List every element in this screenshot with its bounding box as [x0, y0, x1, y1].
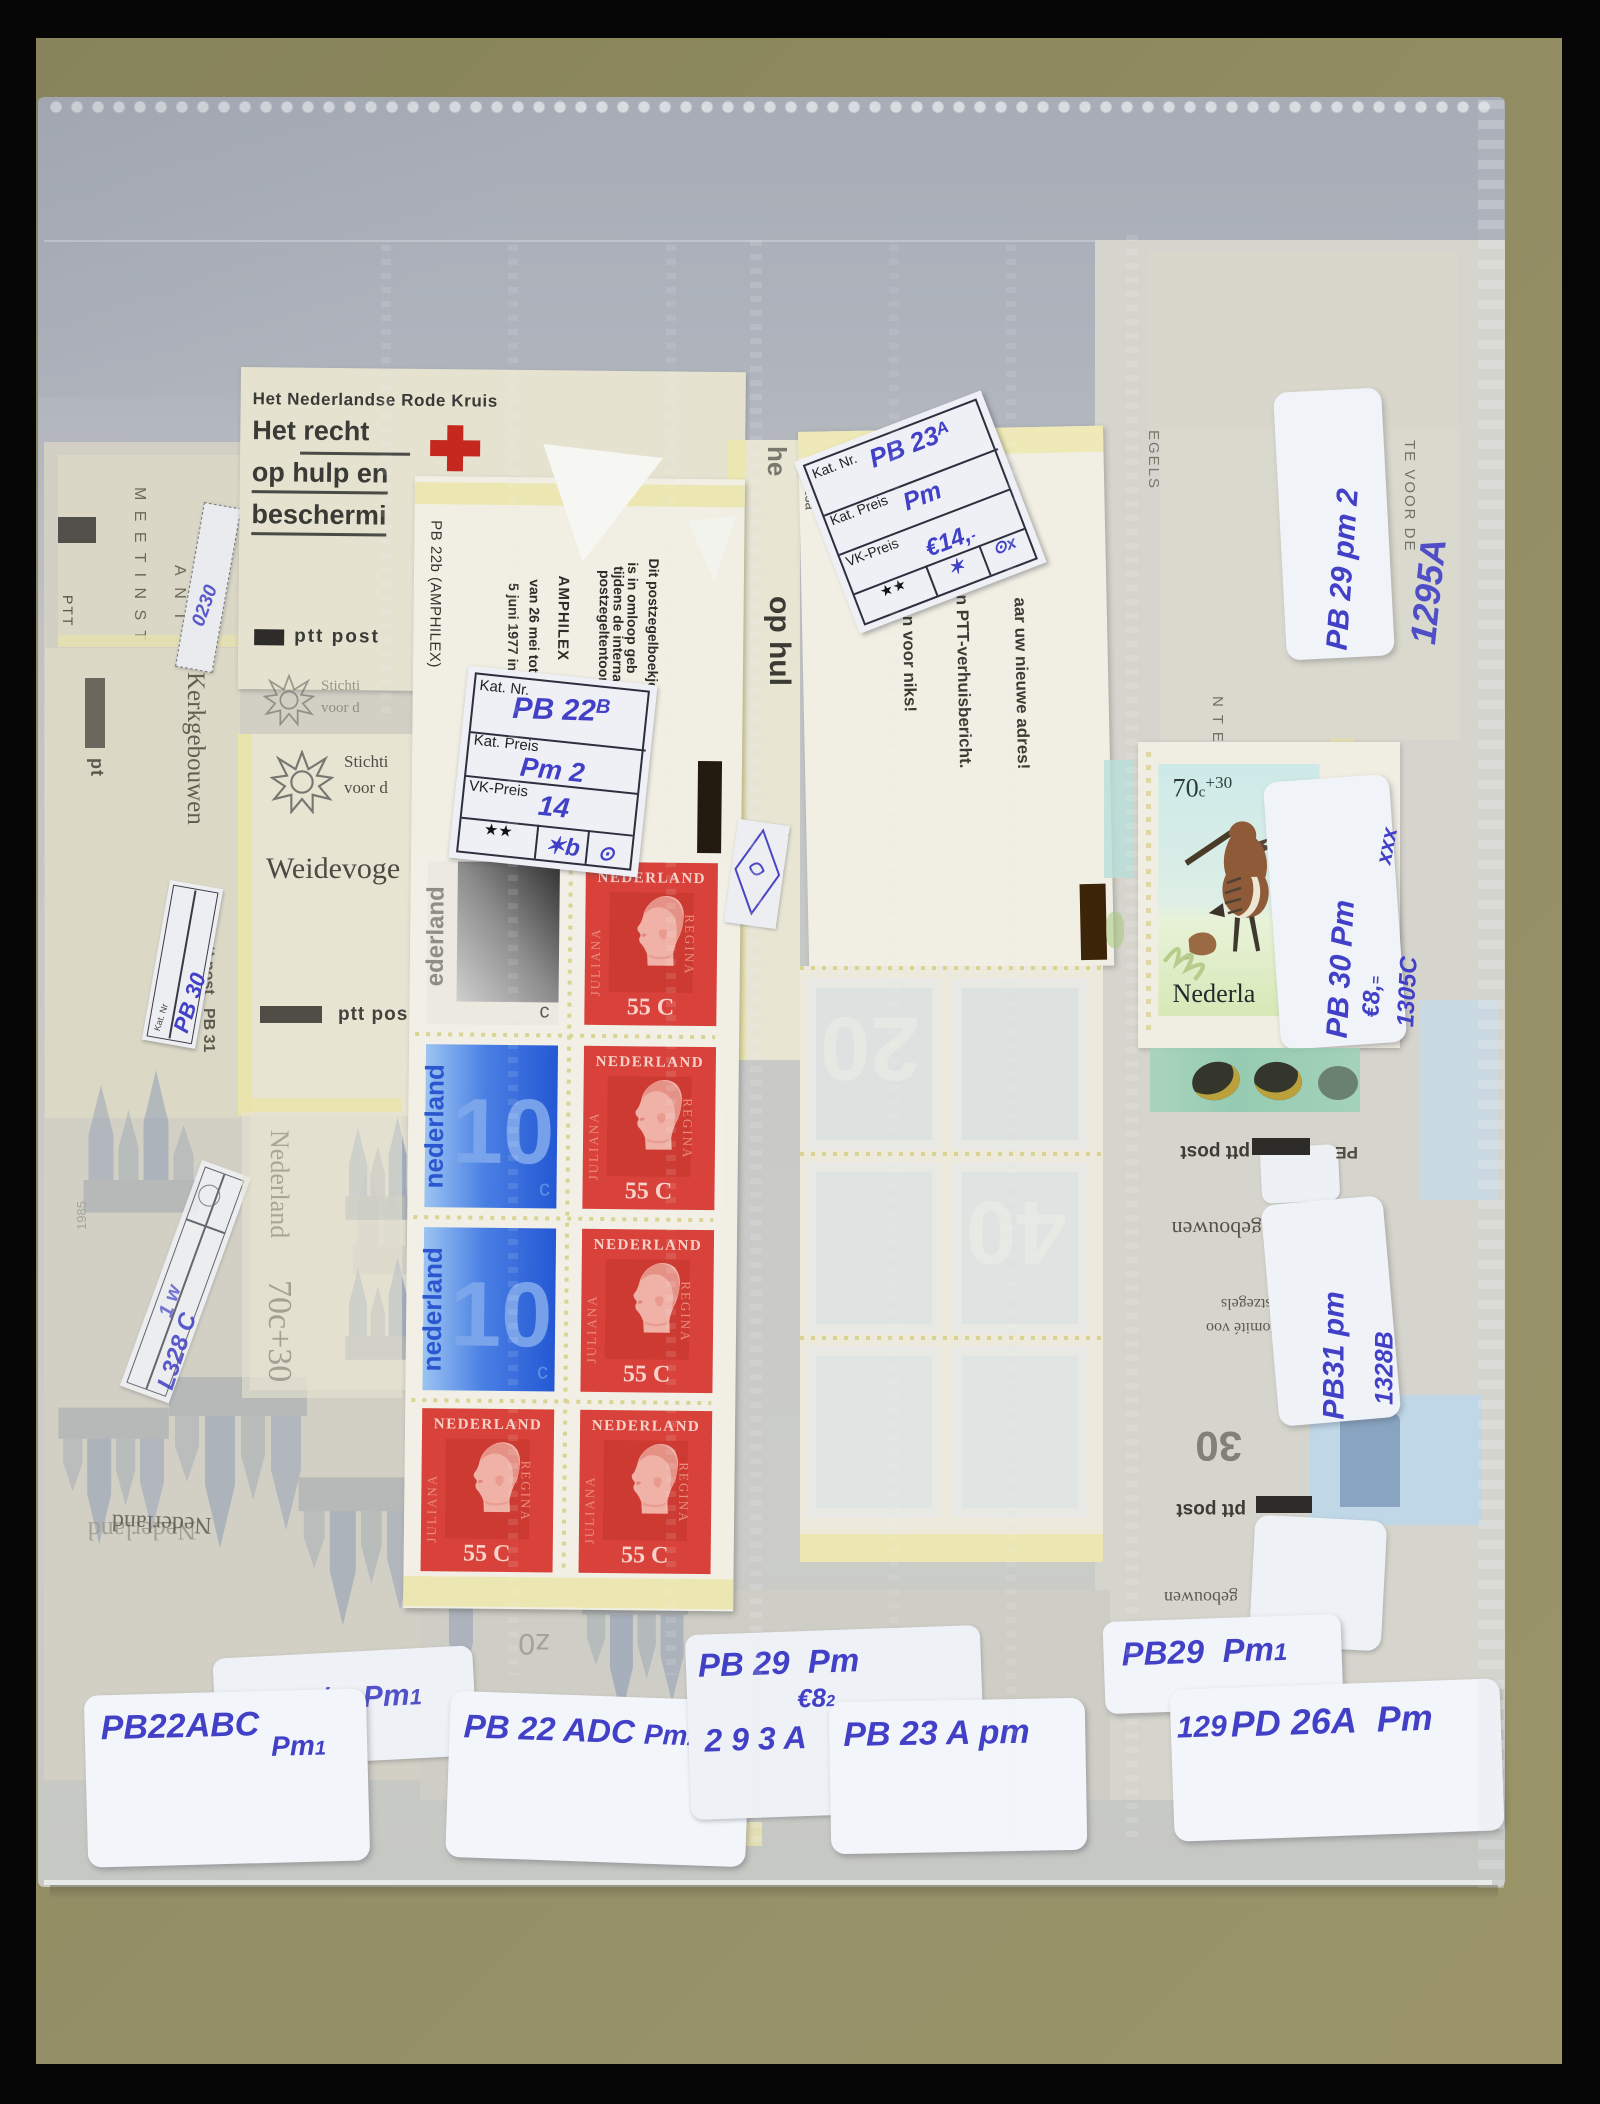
svg-text:1985: 1985	[74, 1201, 89, 1230]
